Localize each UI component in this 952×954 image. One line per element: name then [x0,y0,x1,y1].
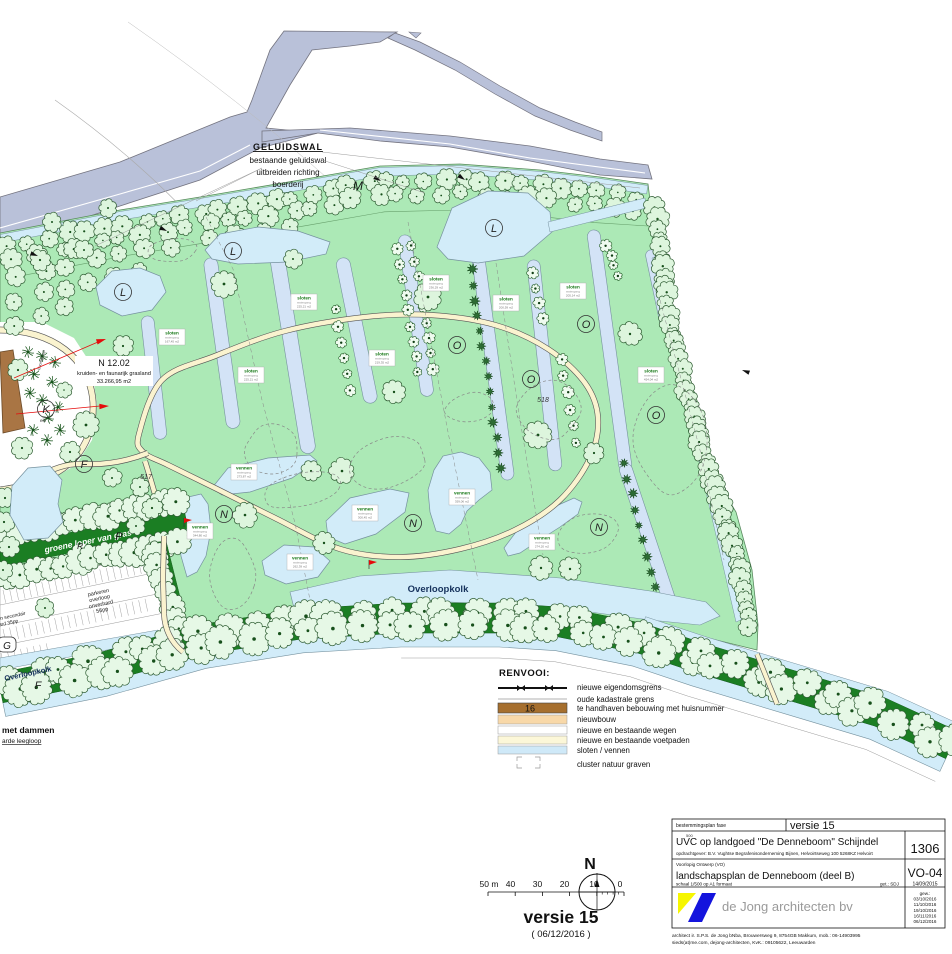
svg-text:nieuwe eigendomsgrens: nieuwe eigendomsgrens [577,683,662,692]
svg-text:bestaande geluidswal: bestaande geluidswal [250,156,327,165]
svg-text:219,35 m2: 219,35 m2 [375,361,390,365]
svg-text:kruiden- en faunarijk grasland: kruiden- en faunarijk grasland [77,371,151,377]
svg-text:16/11/2016: 16/11/2016 [914,913,937,918]
svg-text:nieuwe en bestaande wegen: nieuwe en bestaande wegen [577,726,676,735]
svg-text:11/10/2016: 11/10/2016 [914,902,937,907]
svg-text:344,80 m2: 344,80 m2 [193,534,208,538]
svg-text:205,14 m2: 205,14 m2 [566,294,581,298]
svg-text:N: N [220,509,228,521]
svg-text:200,59 m2: 200,59 m2 [499,306,514,310]
svg-text:RENVOOI:: RENVOOI: [499,668,550,679]
svg-text:versie 15: versie 15 [524,907,599,927]
svg-text:versie 15: versie 15 [790,820,835,832]
svg-text:300,45 m2: 300,45 m2 [358,516,373,520]
svg-text:uitbreiden richting: uitbreiden richting [256,168,319,177]
svg-text:359,06 m2: 359,06 m2 [455,500,470,504]
svg-text:N: N [584,856,596,873]
svg-text:225,21 m2: 225,21 m2 [244,378,259,382]
svg-text:262,39 m2: 262,39 m2 [293,565,308,569]
svg-text:O: O [527,374,536,386]
svg-text:( 06/12/2016 ): ( 06/12/2016 ) [531,929,590,940]
svg-text:schaal 1/500 op A1 formaat: schaal 1/500 op A1 formaat [676,882,733,887]
svg-text:225,21 m2: 225,21 m2 [297,305,312,309]
svg-text:50 m: 50 m [480,879,499,889]
svg-text:14/09/2015: 14/09/2015 [912,882,937,888]
svg-text:274,20 m2: 274,20 m2 [535,545,550,549]
svg-text:236,29 m2: 236,29 m2 [429,286,444,290]
svg-text:N: N [595,522,603,534]
svg-text:UVC op landgoed "De Denneboom": UVC op landgoed "De Denneboom" Schijndel [676,837,878,848]
svg-text:517: 517 [140,474,153,481]
svg-text:VO-04: VO-04 [908,866,943,880]
svg-text:get.: SDJ: get.: SDJ [880,882,899,887]
svg-text:G: G [3,641,11,652]
svg-text:40: 40 [506,879,516,889]
svg-text:L: L [491,223,497,235]
svg-text:Overloopkolk: Overloopkolk [408,584,469,595]
svg-text:P: P [115,531,123,543]
svg-text:eik: eik [40,418,47,423]
svg-text:R: R [77,542,83,551]
svg-text:boerderij: boerderij [272,180,303,189]
svg-text:gew.:: gew.: [920,891,931,896]
svg-text:20: 20 [560,879,570,889]
svg-text:454,04 m2: 454,04 m2 [644,378,659,382]
svg-text:03/10/2016: 03/10/2016 [914,897,937,902]
svg-text:sloten / vennen: sloten / vennen [577,746,630,755]
svg-text:L: L [230,246,236,258]
svg-text:K: K [42,404,50,416]
svg-text:O: O [652,410,661,422]
svg-text:1306: 1306 [911,841,940,856]
svg-text:O: O [453,340,462,352]
svg-text:Voorlopig Ontwerp (VO): Voorlopig Ontwerp (VO) [676,862,725,867]
svg-text:500: 500 [686,833,693,838]
svg-text:M: M [353,179,363,193]
svg-text:33.266,95 m2: 33.266,95 m2 [97,379,131,385]
svg-text:landschapsplan de Denneboom (d: landschapsplan de Denneboom (deel B) [676,871,854,882]
svg-text:arde leegloop: arde leegloop [2,738,42,745]
svg-text:16: 16 [525,704,535,714]
svg-text:N 12.02: N 12.02 [98,358,130,368]
svg-text:cluster natuur graven: cluster natuur graven [577,760,650,769]
svg-text:nieuwe en bestaande voetpaden: nieuwe en bestaande voetpaden [577,736,690,745]
svg-text:GELUIDSWAL: GELUIDSWAL [253,142,323,152]
svg-text:met dammen: met dammen [2,725,54,735]
svg-text:06/12/2016: 06/12/2016 [914,919,937,924]
svg-text:nieuwbouw: nieuwbouw [577,715,616,724]
svg-text:architect ir. S.P.S. de Jong: architect ir. S.P.S. de Jong bNba, Brouw… [672,933,861,939]
svg-text:0: 0 [618,879,623,889]
svg-text:273,87 m2: 273,87 m2 [237,475,252,479]
svg-text:de Jong architecten bv: de Jong architecten bv [722,899,853,914]
svg-text:L: L [120,287,126,299]
svg-text:19/10/2016: 19/10/2016 [914,908,937,913]
svg-text:30: 30 [533,879,543,889]
svg-text:bestemmingsplan fase: bestemmingsplan fase [676,823,726,829]
svg-text:167,45 m2: 167,45 m2 [165,340,180,344]
svg-text:sieds(at)me.com, dejong-archit: sieds(at)me.com, dejong-architecten, KvK… [672,940,816,946]
svg-text:518: 518 [537,397,549,404]
svg-text:te handhaven bebouwing met hui: te handhaven bebouwing met huisnummer [577,704,725,713]
svg-text:oude kadastrale grens: oude kadastrale grens [577,695,654,704]
svg-text:N: N [409,518,417,530]
svg-text:opdrachtgever: B.V. Vughtse Be: opdrachtgever: B.V. Vughtse Begrafenison… [676,851,874,856]
svg-text:O: O [582,319,591,331]
